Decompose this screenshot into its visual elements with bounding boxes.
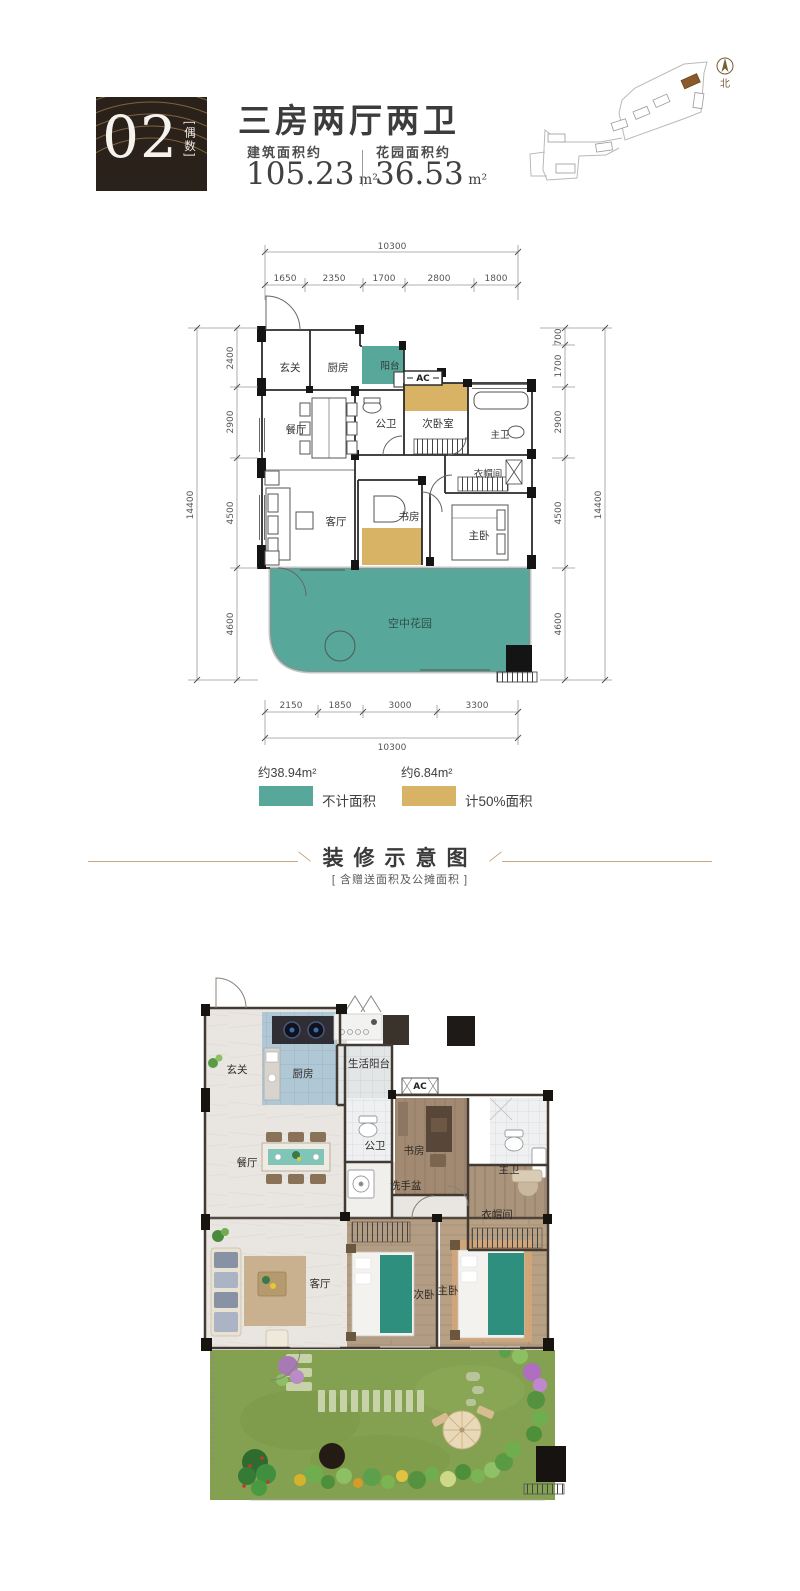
- site-map: 北: [530, 58, 733, 180]
- section-title: 装修示意图: [0, 842, 800, 872]
- dim-left-3: 4500: [226, 501, 236, 524]
- render-label-life-balcony: 生活阳台: [348, 1057, 390, 1070]
- dim-top-4: 2800: [428, 274, 451, 284]
- study-halfarea-fill: [362, 528, 422, 565]
- render-label-master-bedroom: 主卧: [438, 1284, 459, 1297]
- legend-notcounted-label: 不计面积: [322, 790, 376, 810]
- dim-top-3: 1700: [373, 274, 396, 284]
- dim-bottom-3: 3000: [389, 701, 412, 711]
- garden: [210, 1346, 566, 1500]
- build-area-value: 105.23: [246, 156, 354, 192]
- highlighted-building: [681, 74, 700, 89]
- room-label-study: 书房: [399, 510, 420, 523]
- dim-left-2: 2900: [226, 410, 236, 433]
- room-label-master-bedroom: 主卧: [469, 529, 490, 542]
- garden-area-unit: m²: [468, 172, 487, 188]
- divider-line-right: [502, 861, 712, 862]
- dim-right-1: 700: [554, 328, 564, 345]
- dim-right-3: 2900: [554, 410, 564, 433]
- render-label-second-bedroom: 次卧: [414, 1288, 435, 1301]
- render-label-dining: 餐厅: [237, 1156, 258, 1169]
- dim-top-2: 2350: [323, 274, 346, 284]
- render-plan: 玄关 厨房 生活阳台 AC 餐厅 公卫 洗手盆 书房 主卫 衣帽间 客厅 次卧 …: [201, 978, 566, 1500]
- dim-right-4: 4500: [554, 501, 564, 524]
- unit-number: 02: [96, 103, 184, 171]
- room-label-master-bath: 主卫: [490, 429, 510, 441]
- legend-notcounted-swatch: [259, 786, 313, 806]
- legend-halfcounted-swatch: [402, 786, 456, 806]
- room-label-entry: 玄关: [280, 361, 301, 374]
- render-label-master-bath: 主卫: [499, 1164, 520, 1176]
- room-label-second-bedroom: 次卧室: [422, 417, 454, 430]
- floorplan-artwork: 北: [0, 0, 800, 1591]
- dim-left-1: 2400: [226, 346, 236, 369]
- dim-left-4: 4600: [226, 612, 236, 635]
- render-label-ac: AC: [413, 1082, 427, 1092]
- render-label-kitchen: 厨房: [293, 1067, 314, 1080]
- dining-set: [262, 1132, 330, 1184]
- section-subtitle: [ 含赠送面积及公摊面积 ]: [0, 871, 800, 887]
- page-title: 三房两厅两卫: [238, 94, 460, 142]
- dim-bottom-total: 10300: [378, 743, 407, 753]
- dim-bottom-4: 3300: [466, 701, 489, 711]
- garden-column: [506, 645, 532, 672]
- room-label-cloakroom: 衣帽间: [474, 468, 503, 480]
- schematic-plan: 10300 1650 2350 1700 2800 1800 14400 240…: [186, 242, 612, 753]
- dim-bottom-1: 2150: [280, 701, 303, 711]
- legend-halfcounted-area: 约6.84m²: [401, 762, 452, 781]
- north-label: 北: [720, 78, 730, 90]
- planter: [319, 1443, 345, 1469]
- render-label-entry: 玄关: [227, 1063, 248, 1076]
- room-label-dining: 餐厅: [286, 423, 307, 436]
- render-label-cloakroom: 衣帽间: [481, 1208, 513, 1221]
- dim-bottom-2: 1850: [329, 701, 352, 711]
- room-label-balcony: 阳台: [380, 360, 399, 372]
- second-bedroom-halfarea-fill: [404, 383, 468, 411]
- north-arrow-icon: [717, 58, 733, 74]
- render-label-living: 客厅: [310, 1277, 331, 1290]
- render-label-guest-bath: 公卫: [365, 1140, 386, 1152]
- room-label-guest-bath: 公卫: [376, 418, 397, 430]
- legend-notcounted-area: 约38.94m²: [258, 762, 316, 781]
- dim-right-5: 4600: [554, 612, 564, 635]
- dim-left-total: 14400: [186, 490, 196, 519]
- garden-column: [536, 1446, 566, 1482]
- unit-tag: [偶数]: [181, 121, 197, 158]
- build-area-value-row: 105.23 m²: [246, 156, 378, 192]
- render-label-basin: 洗手盆: [390, 1179, 422, 1192]
- header-separator: [362, 150, 363, 186]
- dim-top-1: 1650: [274, 274, 297, 284]
- room-label-living: 客厅: [326, 515, 347, 528]
- dim-top-5: 1800: [485, 274, 508, 284]
- garden-area-value: 36.53: [375, 156, 464, 192]
- legend-halfcounted-label: 计50%面积: [465, 790, 533, 810]
- room-label-ac: AC: [416, 374, 430, 384]
- garden-area-value-row: 36.53 m²: [375, 156, 487, 192]
- floorplan-page: 北: [0, 0, 800, 1591]
- dim-right-total: 14400: [594, 490, 604, 519]
- dim-right-2: 1700: [554, 354, 564, 377]
- dim-top-total: 10300: [378, 242, 407, 252]
- room-label-kitchen: 厨房: [328, 361, 349, 374]
- render-label-study: 书房: [404, 1144, 425, 1157]
- room-label-sky-garden: 空中花园: [388, 616, 432, 630]
